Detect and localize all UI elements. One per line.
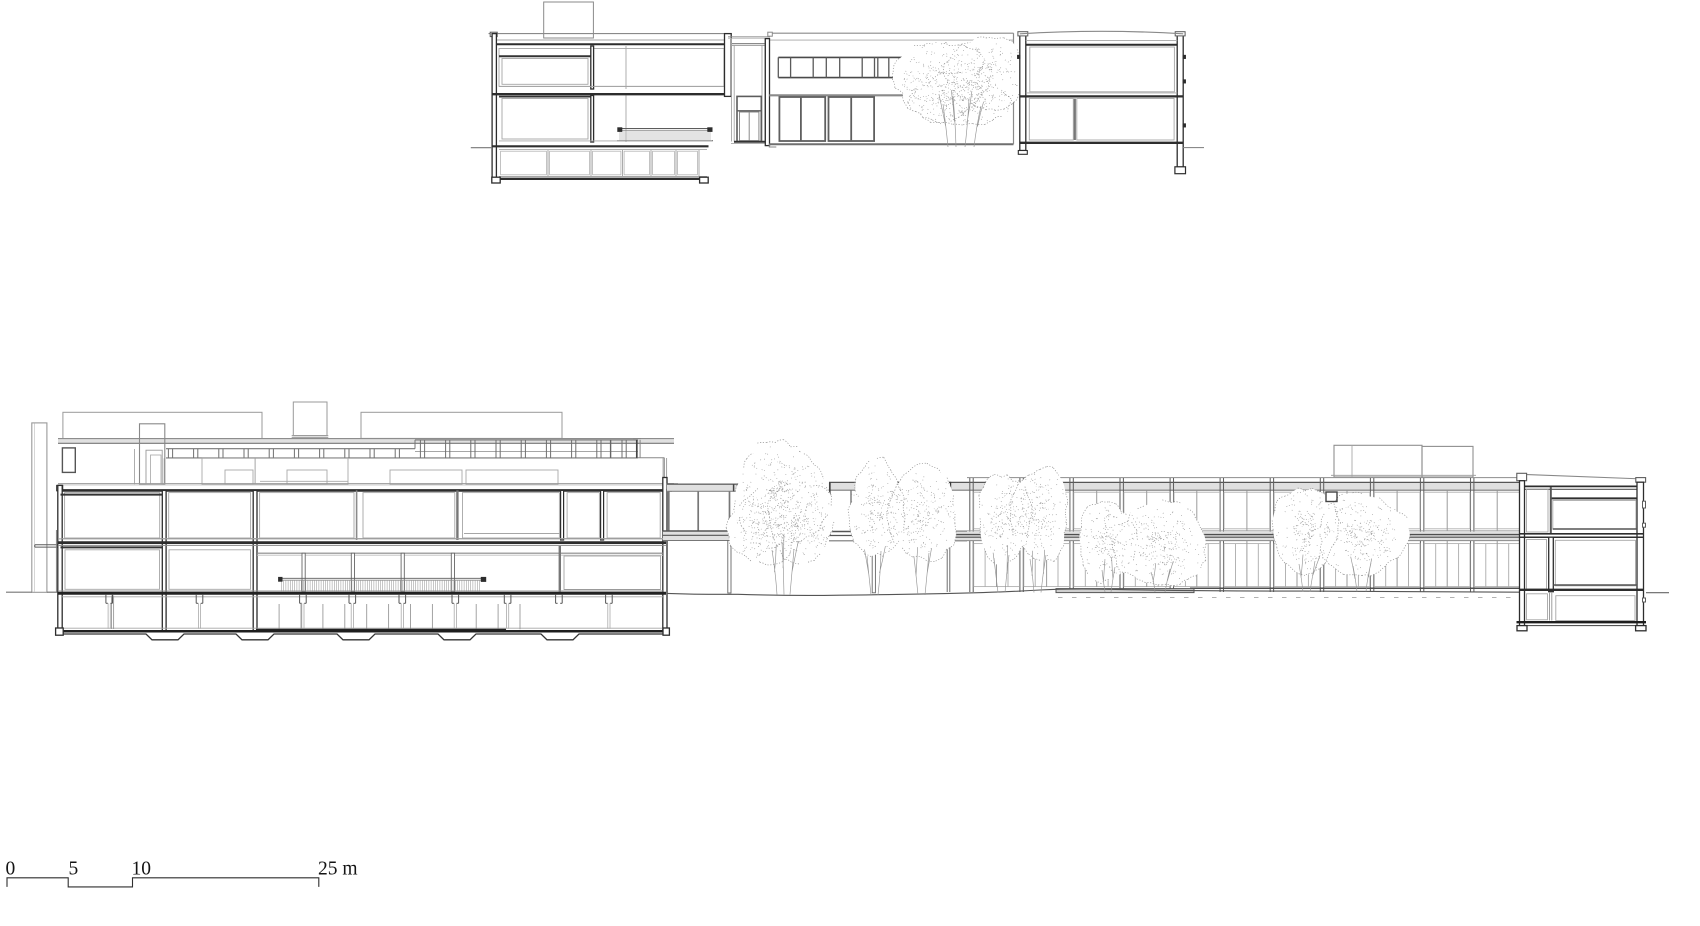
svg-text:10: 10 — [132, 859, 152, 880]
svg-text:25 m: 25 m — [318, 859, 358, 880]
svg-text:0: 0 — [6, 859, 16, 880]
svg-text:5: 5 — [69, 859, 79, 880]
